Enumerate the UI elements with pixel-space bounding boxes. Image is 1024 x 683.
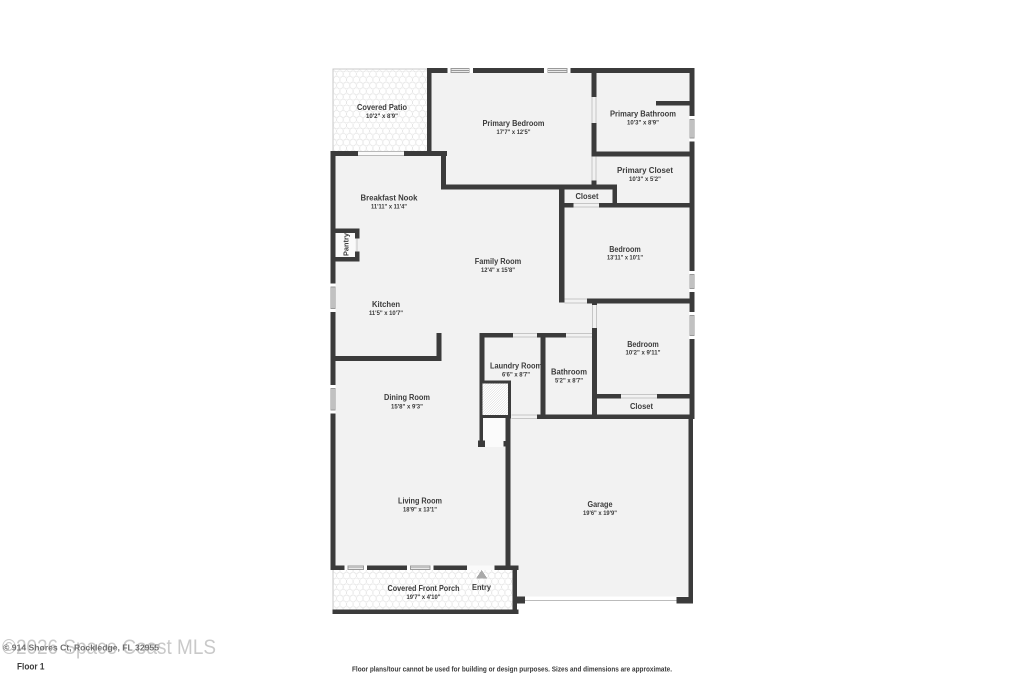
svg-text:Breakfast Nook: Breakfast Nook bbox=[361, 193, 418, 203]
svg-text:© 914 Shores Ct, Rockledge, FL: © 914 Shores Ct, Rockledge, FL 32955 bbox=[3, 644, 159, 653]
svg-text:Covered Front Porch: Covered Front Porch bbox=[388, 583, 460, 593]
svg-text:11'5" x 10'7": 11'5" x 10'7" bbox=[369, 310, 403, 317]
svg-text:17'7" x 12'5": 17'7" x 12'5" bbox=[497, 129, 531, 136]
svg-text:Bathroom: Bathroom bbox=[551, 367, 587, 377]
svg-text:6'6" x 8'7": 6'6" x 8'7" bbox=[502, 372, 530, 379]
svg-text:15'8" x 9'3": 15'8" x 9'3" bbox=[391, 404, 423, 411]
svg-text:Kitchen: Kitchen bbox=[372, 299, 400, 309]
svg-text:Family Room: Family Room bbox=[475, 256, 522, 266]
svg-text:Floor 1: Floor 1 bbox=[17, 662, 45, 672]
svg-text:18'9" x 13'1": 18'9" x 13'1" bbox=[403, 507, 437, 514]
svg-text:Entry: Entry bbox=[472, 582, 491, 592]
svg-text:Floor plans/tour cannot be use: Floor plans/tour cannot be used for buil… bbox=[352, 665, 672, 674]
svg-text:Primary Bedroom: Primary Bedroom bbox=[483, 118, 545, 128]
svg-text:10'2" x 8'9": 10'2" x 8'9" bbox=[366, 113, 398, 120]
svg-text:19'6" x 19'9": 19'6" x 19'9" bbox=[583, 510, 617, 517]
svg-text:Bedroom: Bedroom bbox=[627, 339, 659, 349]
svg-text:Closet: Closet bbox=[576, 191, 599, 201]
svg-text:10'2" x 9'11": 10'2" x 9'11" bbox=[626, 350, 661, 357]
svg-text:Laundry Room: Laundry Room bbox=[490, 361, 542, 371]
svg-text:12'4" x 15'8": 12'4" x 15'8" bbox=[481, 267, 515, 274]
svg-text:Garage: Garage bbox=[588, 499, 613, 509]
svg-text:Pantry: Pantry bbox=[344, 233, 351, 256]
svg-text:19'7" x 4'10": 19'7" x 4'10" bbox=[407, 594, 441, 601]
svg-text:11'11" x 11'4": 11'11" x 11'4" bbox=[371, 204, 407, 211]
svg-text:Primary Bathroom: Primary Bathroom bbox=[610, 109, 676, 119]
svg-text:Primary Closet: Primary Closet bbox=[617, 165, 673, 175]
svg-text:Dining Room: Dining Room bbox=[384, 392, 430, 402]
svg-text:10'3" x 8'9": 10'3" x 8'9" bbox=[627, 120, 659, 127]
svg-text:Closet: Closet bbox=[630, 401, 653, 411]
svg-text:Covered Patio: Covered Patio bbox=[357, 102, 407, 112]
svg-text:5'2" x 8'7": 5'2" x 8'7" bbox=[555, 378, 583, 385]
svg-text:Bedroom: Bedroom bbox=[609, 244, 641, 254]
svg-text:13'11" x 10'1": 13'11" x 10'1" bbox=[607, 255, 643, 262]
svg-text:Living Room: Living Room bbox=[398, 496, 442, 506]
svg-text:10'3" x 5'2": 10'3" x 5'2" bbox=[629, 176, 661, 183]
